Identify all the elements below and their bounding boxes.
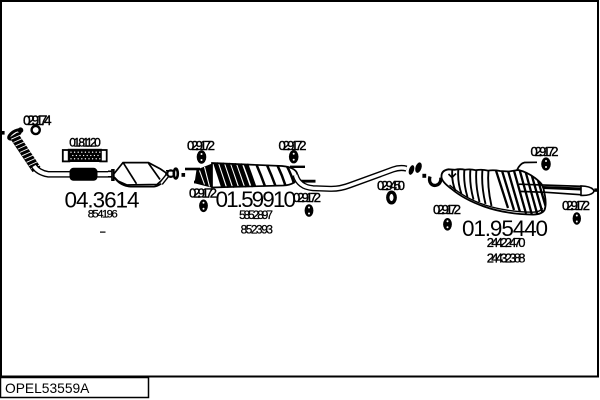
svg-text:852393: 852393 [241,222,274,236]
svg-text:04.3614: 04.3614 [65,188,140,213]
svg-text:02.9172: 02.9172 [562,198,590,213]
svg-text:24432388: 24432388 [487,250,526,265]
svg-text:01.59910: 01.59910 [216,187,297,212]
svg-text:02.9172: 02.9172 [187,138,215,153]
svg-text:01.81120: 01.81120 [69,135,101,149]
svg-text:02.9172: 02.9172 [531,144,559,159]
svg-text:OPEL53559A: OPEL53559A [5,381,90,396]
svg-text:02.9172: 02.9172 [293,190,321,205]
svg-text:02.9174: 02.9174 [23,113,52,128]
svg-text:02.9450: 02.9450 [377,178,405,193]
svg-text:01.95440: 01.95440 [462,216,548,241]
svg-text:02.9172: 02.9172 [189,186,217,201]
svg-text:02.9172: 02.9172 [433,202,461,217]
svg-text:02.9172: 02.9172 [279,138,307,153]
